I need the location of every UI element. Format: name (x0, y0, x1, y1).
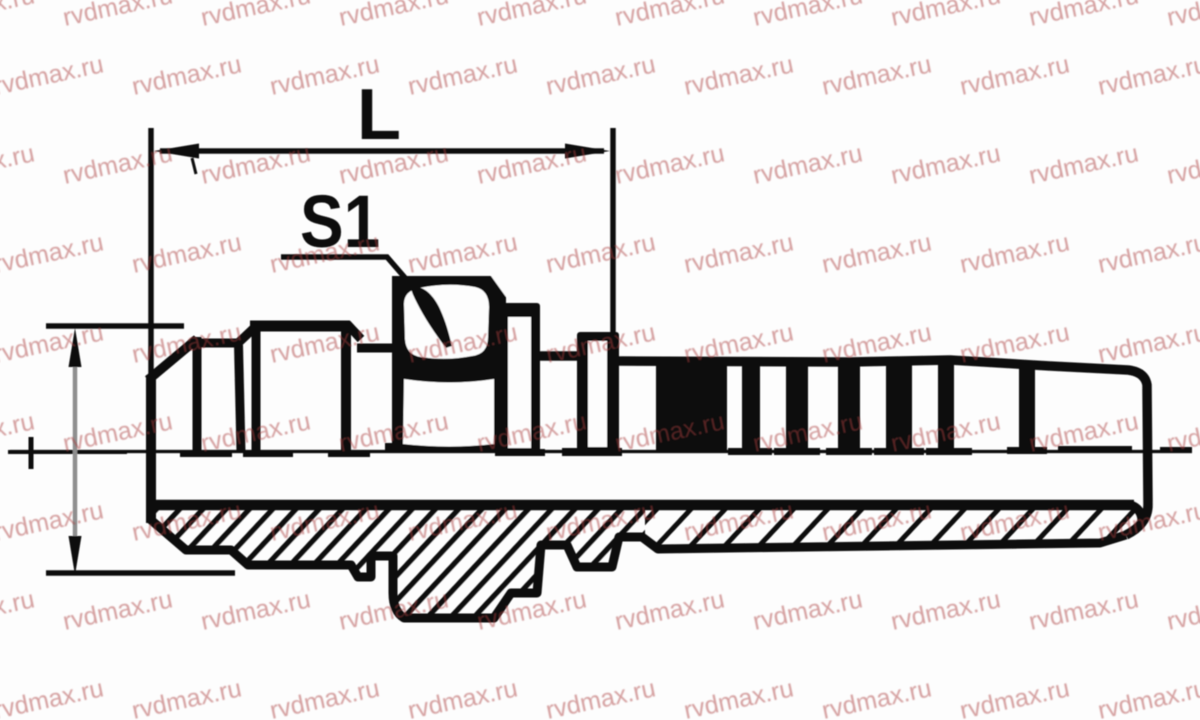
svg-text:L: L (357, 75, 401, 155)
